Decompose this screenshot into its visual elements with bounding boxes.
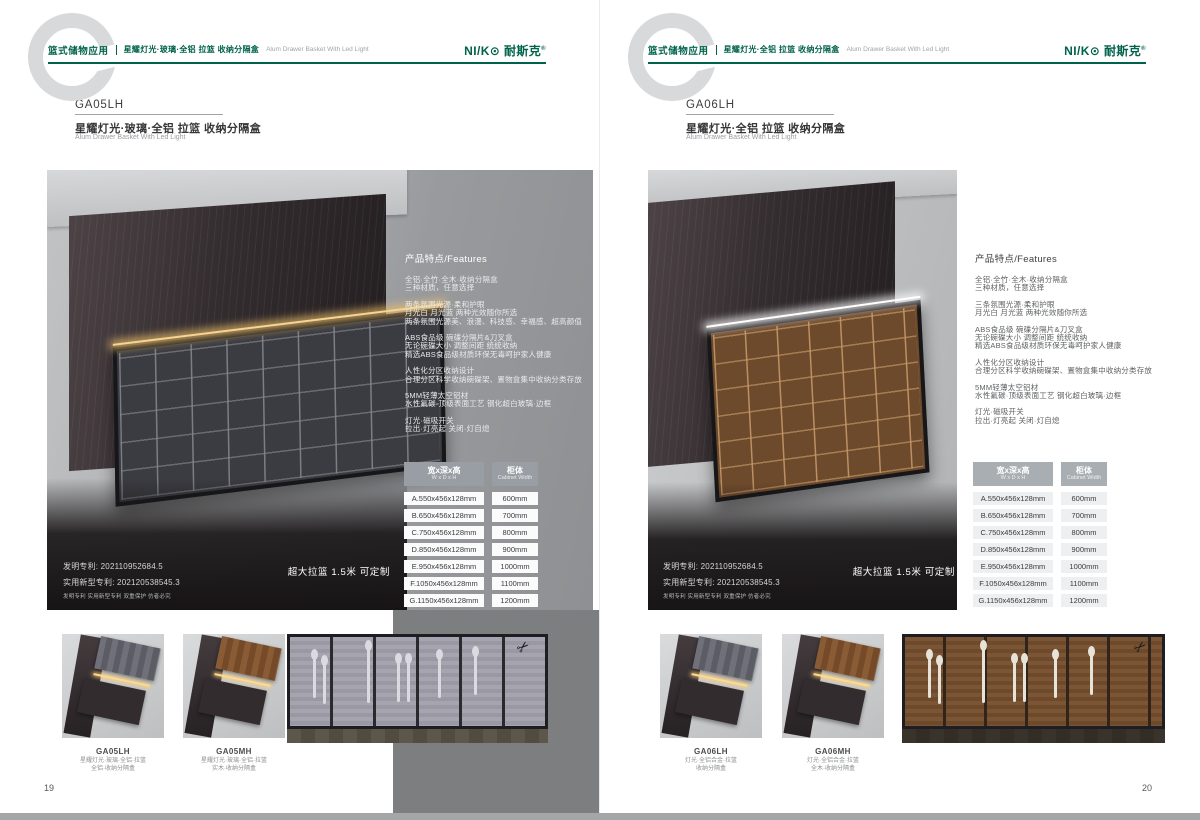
spec-cabinet-width: 900mm <box>492 543 538 556</box>
header-divider <box>716 45 717 55</box>
thumbnail-caption: GA06LH 灯光·全铝合金·拉篮 收纳分隔盒 <box>645 747 777 773</box>
spec-header-dimensions: 宽x深x高 W x D x H <box>404 462 484 486</box>
feature-line: 精选ABS食品级材质环保无毒呵护家人健康 <box>405 351 590 359</box>
spec-cabinet-width: 700mm <box>492 509 538 522</box>
fork-silhouette <box>397 662 400 702</box>
spec-row: G.1150x456x128mm1200mm <box>404 594 538 607</box>
main-product-photo <box>648 170 957 610</box>
product-name-en: Alum Drawer Basket With Led Light <box>686 134 797 141</box>
organizer-compartments: ✂ <box>905 637 1162 726</box>
thumb-code: GA06LH <box>645 747 777 756</box>
brand-logo-text: NI/K⊙ 耐斯克 <box>1064 44 1141 58</box>
patent-utility: 实用新型专利: 202120538545.3 <box>63 577 180 588</box>
fork-silhouette <box>1013 662 1016 702</box>
thumb-code: GA06MH <box>767 747 899 756</box>
brand-logo-text: NI/K⊙ 耐斯克 <box>464 44 541 58</box>
feature-group: 两条氛围光源·柔和护眼月光白 月光蓝 两种光效随你所选两条氛围光源美、浪漫、科技… <box>405 301 590 326</box>
spoon-silhouette <box>323 664 326 704</box>
product-code-underline <box>686 114 834 115</box>
spec-header-dimensions-en: W x D x H <box>1001 475 1026 482</box>
spec-row: B.650x456x128mm700mm <box>404 509 538 522</box>
spoon-silhouette <box>407 662 410 702</box>
feature-line: 拉出·灯亮起 关闭·灯自熄 <box>405 425 590 433</box>
spec-row: C.750x456x128mm800mm <box>404 526 538 539</box>
catalog-spread: 篮式储物应用 星耀灯光·玻璃·全铝 拉篮 收纳分隔盒 Alum Drawer B… <box>0 0 1200 820</box>
page-header-left: 篮式储物应用 星耀灯光·玻璃·全铝 拉篮 收纳分隔盒 Alum Drawer B… <box>48 42 369 57</box>
feature-group: 人性化分区收纳设计合理分区科学收纳碗碟架、置物盒集中收纳分类存放 <box>975 359 1170 376</box>
header-underline <box>648 62 1146 64</box>
spec-cabinet-width: 800mm <box>492 526 538 539</box>
patent-info: 发明专利: 202110952684.5 实用新型专利: 20212053854… <box>663 561 780 600</box>
thumb-desc: 灯光·全铝合金·拉篮 <box>767 758 899 766</box>
feature-line: 水性氟碳·顶级表面工艺 钢化超白玻璃·边框 <box>405 400 590 408</box>
spec-dimension: G.1150x456x128mm <box>973 594 1053 607</box>
spec-dimension: C.750x456x128mm <box>404 526 484 539</box>
page-header-right: 篮式储物应用 星耀灯光·全铝 拉篮 收纳分隔盒 Alum Drawer Bask… <box>648 42 949 57</box>
spec-dimension: C.750x456x128mm <box>973 526 1053 539</box>
spec-row: D.850x456x128mm900mm <box>404 543 538 556</box>
spec-dimension: D.850x456x128mm <box>973 543 1053 556</box>
patent-utility: 实用新型专利: 202120538545.3 <box>663 577 780 588</box>
fork-silhouette <box>474 655 477 695</box>
thumbnail-photo-ga06lh <box>660 634 762 738</box>
page-number-right: 20 <box>1142 783 1152 793</box>
counter-wood-edge <box>287 729 548 743</box>
patent-note: 发明专利 实用新型专利 双重保护 仿者必究 <box>663 592 780 600</box>
spec-cabinet-width: 700mm <box>1061 509 1107 522</box>
ladle-silhouette <box>367 649 370 702</box>
spoon-silhouette <box>438 658 441 698</box>
spoon-silhouette <box>1054 658 1057 698</box>
spec-table-header: 宽x深x高 W x D x H 柜体 Cabinet Width <box>404 462 538 486</box>
spec-header-cabinet-cn: 柜体 <box>507 466 523 475</box>
thumb-desc: 星耀灯光·玻璃·全铝·拉篮 <box>47 758 179 766</box>
product-name-en: Alum Drawer Basket With Led Light <box>75 134 186 141</box>
features-heading: 产品特点/Features <box>975 251 1170 265</box>
feature-group: ABS食品级 碗碟分隔片&刀叉盒无论碗碟大小 调整间距 统统收纳精选ABS食品级… <box>975 326 1170 351</box>
counter-wood-edge <box>902 729 1165 743</box>
spec-row: E.950x456x128mm1000mm <box>973 560 1107 573</box>
spec-dimension: E.950x456x128mm <box>404 560 484 573</box>
thumbnail-photo-ga05lh <box>62 634 164 738</box>
spec-row: F.1050x456x128mm1100mm <box>404 577 538 590</box>
patent-note: 发明专利 实用新型专利 双重保护 仿者必究 <box>63 592 180 600</box>
scissors-icon: ✂ <box>513 636 534 658</box>
drawer-topview-photo: ✂ <box>902 634 1165 743</box>
spec-table: 宽x深x高 W x D x H 柜体 Cabinet Width A.550x4… <box>404 462 538 611</box>
page-bottom-edge <box>0 813 1200 820</box>
spec-dimension: A.550x456x128mm <box>973 492 1053 505</box>
patent-invention: 发明专利: 202110952684.5 <box>663 561 780 572</box>
spec-header-cabinet-en: Cabinet Width <box>1067 475 1102 482</box>
feature-group: 5MM轻薄太空铝材水性氟碳·顶级表面工艺 钢化超白玻璃·边框 <box>975 384 1170 401</box>
header-subtitle-en: Alum Drawer Basket With Led Light <box>266 46 369 53</box>
spec-dimension: D.850x456x128mm <box>404 543 484 556</box>
spec-cabinet-width: 600mm <box>492 492 538 505</box>
spec-header-dimensions-cn: 宽x深x高 <box>997 466 1030 475</box>
page-number-left: 19 <box>44 783 54 793</box>
header-subtitle-en: Alum Drawer Basket With Led Light <box>847 46 950 53</box>
spec-dimension: B.650x456x128mm <box>404 509 484 522</box>
organizer-compartments: ✂ <box>290 637 545 726</box>
thumb-code: GA05LH <box>47 747 179 756</box>
spec-dimension: F.1050x456x128mm <box>404 577 484 590</box>
spec-row: B.650x456x128mm700mm <box>973 509 1107 522</box>
thumb-desc: 全木·收纳分隔盒 <box>767 766 899 774</box>
spec-row: C.750x456x128mm800mm <box>973 526 1107 539</box>
thumb-desc: 收纳分隔盒 <box>645 766 777 774</box>
header-section: 篮式储物应用 <box>48 43 109 57</box>
thumbnail-photo-ga05mh <box>183 634 285 738</box>
spoon-silhouette <box>938 664 941 704</box>
ladle-silhouette <box>982 649 985 702</box>
spec-table-header: 宽x深x高 W x D x H 柜体 Cabinet Width <box>973 462 1107 486</box>
feature-line: 三种材质，任意选择 <box>405 284 590 292</box>
thumb-desc: 实木·收纳分隔盒 <box>168 766 300 774</box>
open-drawer <box>706 300 929 502</box>
thumb-desc: 全铝·收纳分隔盒 <box>47 766 179 774</box>
spec-header-dimensions-en: W x D x H <box>432 475 457 482</box>
feature-line: 两条氛围光源美、浪漫、科技感、幸福感、超高颜值 <box>405 318 590 326</box>
header-divider <box>116 45 117 55</box>
thumb-code: GA05MH <box>168 747 300 756</box>
spec-cabinet-width: 800mm <box>1061 526 1107 539</box>
header-subtitle: 星耀灯光·全铝 拉篮 收纳分隔盒 <box>724 44 840 55</box>
feature-group: ABS食品级 碗碟分隔片&刀叉盒无论碗碟大小 调整间距 统统收纳精选ABS食品级… <box>405 334 590 359</box>
feature-line: 精选ABS食品级材质环保无毒呵护家人健康 <box>975 342 1170 350</box>
feature-group: 全铝·全竹·全木·收纳分隔盒三种材质，任意选择 <box>975 276 1170 293</box>
spec-dimension: B.650x456x128mm <box>973 509 1053 522</box>
spec-cabinet-width: 1100mm <box>1061 577 1107 590</box>
spec-row: A.550x456x128mm600mm <box>973 492 1107 505</box>
c-watermark <box>28 13 116 101</box>
drawer-organizer-grid <box>118 314 439 500</box>
spec-rows: A.550x456x128mm600mmB.650x456x128mm700mm… <box>404 492 538 607</box>
spec-header-dimensions: 宽x深x高 W x D x H <box>973 462 1053 486</box>
feature-group: 人性化分区收纳设计合理分区科学收纳碗碟架、置物盒集中收纳分类存放 <box>405 367 590 384</box>
spec-cabinet-width: 1200mm <box>1061 594 1107 607</box>
page-gutter <box>599 0 600 820</box>
spoon-silhouette <box>313 658 316 698</box>
thumb-desc: 灯光·全铝合金·拉篮 <box>645 758 777 766</box>
thumbnail-caption: GA05LH 星耀灯光·玻璃·全铝·拉篮 全铝·收纳分隔盒 <box>47 747 179 773</box>
header-subtitle: 星耀灯光·玻璃·全铝 拉篮 收纳分隔盒 <box>124 44 259 55</box>
spec-cabinet-width: 900mm <box>1061 543 1107 556</box>
drawer-organizer-grid <box>713 307 924 495</box>
spec-cabinet-width: 1200mm <box>492 594 538 607</box>
spec-header-cabinet-en: Cabinet Width <box>498 475 533 482</box>
features-panel: 产品特点/Features 全铝·全竹·全木·收纳分隔盒三种材质，任意选择 两条… <box>405 251 590 442</box>
spec-dimension: A.550x456x128mm <box>404 492 484 505</box>
feature-line: 月光白 月光蓝 两种光效随你所选 <box>975 309 1170 317</box>
spec-cabinet-width: 1000mm <box>492 560 538 573</box>
spec-dimension: F.1050x456x128mm <box>973 577 1053 590</box>
patent-invention: 发明专利: 202110952684.5 <box>63 561 180 572</box>
brand-logo: NI/K⊙ 耐斯克® <box>1036 42 1146 59</box>
header-underline <box>48 62 546 64</box>
feature-group: 5MM轻薄太空铝材水性氟碳·顶级表面工艺 钢化超白玻璃·边框 <box>405 392 590 409</box>
c-watermark <box>628 13 716 101</box>
spec-row: E.950x456x128mm1000mm <box>404 560 538 573</box>
spec-header-cabinet: 柜体 Cabinet Width <box>1061 462 1107 486</box>
spec-header-dimensions-cn: 宽x深x高 <box>428 466 461 475</box>
features-panel: 产品特点/Features 全铝·全竹·全木·收纳分隔盒三种材质，任意选择 三条… <box>975 251 1170 433</box>
drawer-topview-photo: ✂ <box>287 634 548 743</box>
spoon-silhouette <box>1023 662 1026 702</box>
patent-info: 发明专利: 202110952684.5 实用新型专利: 20212053854… <box>63 561 180 600</box>
feature-group: 全铝·全竹·全木·收纳分隔盒三种材质，任意选择 <box>405 276 590 293</box>
spoon-silhouette <box>928 658 931 698</box>
spec-row: A.550x456x128mm600mm <box>404 492 538 505</box>
header-section: 篮式储物应用 <box>648 43 709 57</box>
spec-cabinet-width: 600mm <box>1061 492 1107 505</box>
thumbnail-caption: GA06MH 灯光·全铝合金·拉篮 全木·收纳分隔盒 <box>767 747 899 773</box>
feature-group: 三条氛围光源·柔和护眼月光白 月光蓝 两种光效随你所选 <box>975 301 1170 318</box>
oversize-badge: 超大拉篮 1.5米 可定制 <box>800 564 955 578</box>
thumb-desc: 星耀灯光·玻璃·全铝·拉篮 <box>168 758 300 766</box>
thumbnail-caption: GA05MH 星耀灯光·玻璃·全铝·拉篮 实木·收纳分隔盒 <box>168 747 300 773</box>
spec-dimension: E.950x456x128mm <box>973 560 1053 573</box>
spec-dimension: G.1150x456x128mm <box>404 594 484 607</box>
feature-group: 灯光·磁吸开关拉出·灯亮起 关闭·灯自熄 <box>975 408 1170 425</box>
spec-cabinet-width: 1000mm <box>1061 560 1107 573</box>
feature-group: 灯光·磁吸开关拉出·灯亮起 关闭·灯自熄 <box>405 417 590 434</box>
oversize-badge: 超大拉篮 1.5米 可定制 <box>235 564 390 578</box>
feature-line: 三种材质，任意选择 <box>975 284 1170 292</box>
spec-cabinet-width: 1100mm <box>492 577 538 590</box>
spec-header-cabinet: 柜体 Cabinet Width <box>492 462 538 486</box>
registered-mark: ® <box>541 46 546 52</box>
product-code-underline <box>75 114 223 115</box>
feature-line: 拉出·灯亮起 关闭·灯自熄 <box>975 417 1170 425</box>
thumbnail-photo-ga06mh <box>782 634 884 738</box>
registered-mark: ® <box>1141 46 1146 52</box>
features-heading: 产品特点/Features <box>405 251 590 265</box>
feature-line: 合理分区科学收纳碗碟架、置物盒集中收纳分类存放 <box>405 376 590 384</box>
fork-silhouette <box>1090 655 1093 695</box>
scissors-icon: ✂ <box>1130 636 1151 658</box>
spec-row: F.1050x456x128mm1100mm <box>973 577 1107 590</box>
feature-line: 水性氟碳·顶级表面工艺 钢化超白玻璃·边框 <box>975 392 1170 400</box>
spec-row: D.850x456x128mm900mm <box>973 543 1107 556</box>
spec-row: G.1150x456x128mm1200mm <box>973 594 1107 607</box>
feature-line: 合理分区科学收纳碗碟架、置物盒集中收纳分类存放 <box>975 367 1170 375</box>
spec-table: 宽x深x高 W x D x H 柜体 Cabinet Width A.550x4… <box>973 462 1107 611</box>
spec-header-cabinet-cn: 柜体 <box>1076 466 1092 475</box>
brand-logo: NI/K⊙ 耐斯克® <box>436 42 546 59</box>
spec-rows: A.550x456x128mm600mmB.650x456x128mm700mm… <box>973 492 1107 607</box>
